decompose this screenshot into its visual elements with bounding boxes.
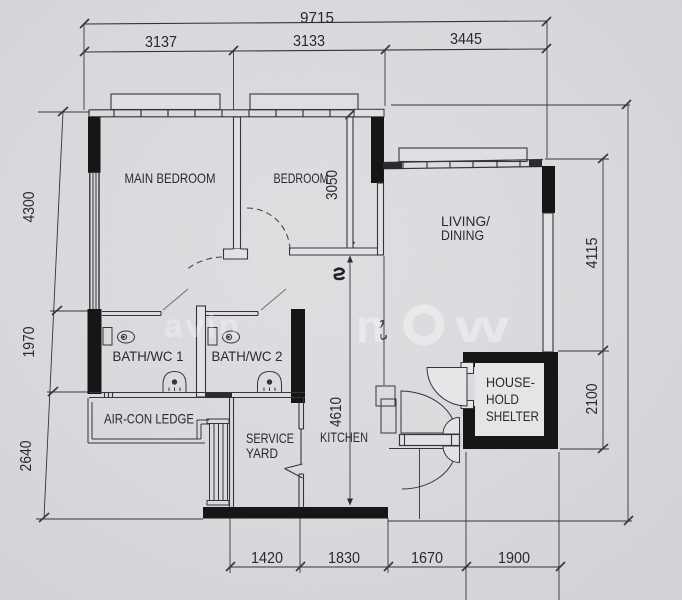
svg-text:HOLD: HOLD bbox=[486, 391, 519, 407]
svg-text:1420: 1420 bbox=[251, 550, 283, 567]
svg-text:2640: 2640 bbox=[18, 440, 35, 471]
svg-text:1830: 1830 bbox=[328, 550, 360, 567]
svg-text:3133: 3133 bbox=[293, 33, 325, 50]
svg-text:1970: 1970 bbox=[21, 326, 38, 357]
svg-text:1670: 1670 bbox=[411, 550, 443, 567]
svg-text:HOUSE-: HOUSE- bbox=[486, 374, 535, 390]
svg-text:w: w bbox=[453, 300, 509, 352]
svg-text:SHELTER: SHELTER bbox=[486, 408, 539, 424]
svg-text:3445: 3445 bbox=[450, 31, 482, 48]
svg-text:AIR-CON LEDGE: AIR-CON LEDGE bbox=[104, 411, 194, 427]
svg-text:YARD: YARD bbox=[246, 445, 278, 461]
svg-text:3050: 3050 bbox=[324, 170, 341, 200]
svg-text:MAIN BEDROOM: MAIN BEDROOM bbox=[125, 170, 216, 186]
svg-text:SERVICE: SERVICE bbox=[246, 430, 294, 446]
svg-text:4610: 4610 bbox=[328, 397, 345, 427]
svg-text:BATH/WC 1: BATH/WC 1 bbox=[113, 348, 184, 364]
svg-text:BEDROOM: BEDROOM bbox=[274, 170, 329, 186]
svg-text:3137: 3137 bbox=[145, 34, 177, 51]
svg-text:4300: 4300 bbox=[21, 191, 38, 222]
svg-text:KITCHEN: KITCHEN bbox=[320, 429, 368, 445]
svg-text:DINING: DINING bbox=[441, 227, 484, 243]
svg-text:9715: 9715 bbox=[300, 10, 334, 27]
svg-text:4115: 4115 bbox=[584, 238, 601, 269]
svg-text:n: n bbox=[356, 300, 384, 352]
svg-text:1900: 1900 bbox=[498, 550, 530, 567]
svg-text:avin: avin bbox=[164, 307, 242, 344]
svg-text:BATH/WC 2: BATH/WC 2 bbox=[212, 348, 283, 364]
svg-text:2100: 2100 bbox=[584, 383, 601, 414]
